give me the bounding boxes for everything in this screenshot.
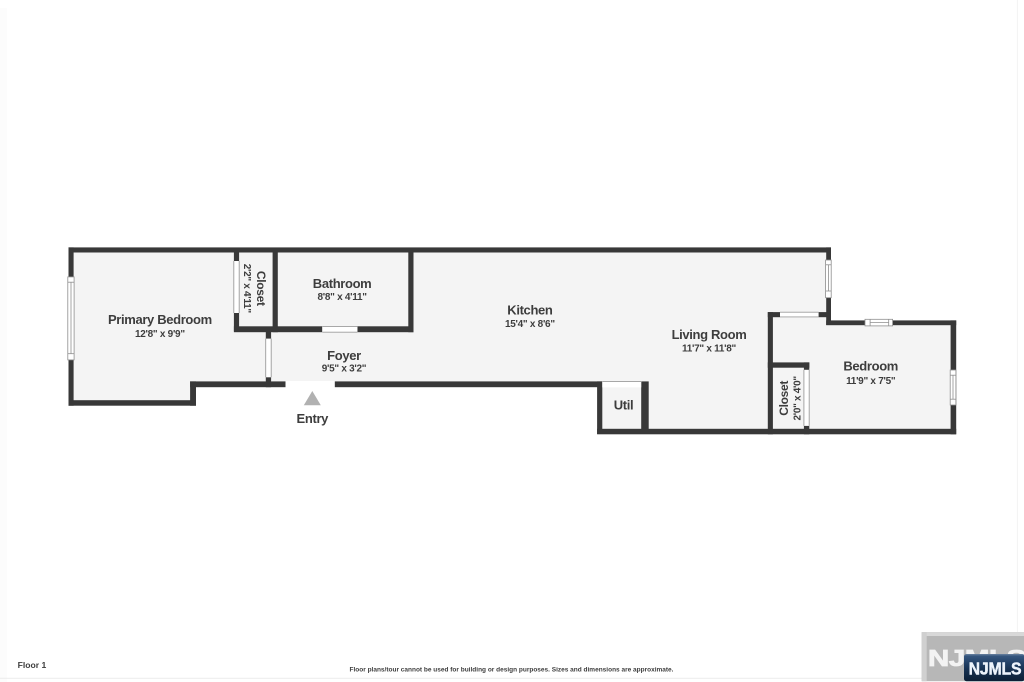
svg-text:Bathroom: Bathroom — [313, 276, 372, 291]
svg-text:Entry: Entry — [297, 411, 330, 426]
svg-text:2'0" x 4'0": 2'0" x 4'0" — [793, 376, 804, 421]
svg-text:Living Room: Living Room — [672, 327, 747, 342]
svg-text:Floor plans/tour cannot be use: Floor plans/tour cannot be used for buil… — [350, 666, 674, 673]
svg-text:2'2" x 4'11": 2'2" x 4'11" — [241, 264, 252, 314]
svg-text:9'5" x 3'2": 9'5" x 3'2" — [322, 363, 367, 374]
svg-text:Foyer: Foyer — [327, 348, 361, 363]
svg-text:Util: Util — [614, 397, 634, 412]
svg-text:Floor 1: Floor 1 — [18, 660, 47, 670]
svg-text:Closet: Closet — [254, 271, 268, 306]
svg-text:15'4" x 8'6": 15'4" x 8'6" — [505, 319, 555, 330]
svg-text:Bedroom: Bedroom — [843, 359, 898, 374]
svg-text:NJMLS: NJMLS — [969, 659, 1022, 679]
svg-text:11'7" x 11'8": 11'7" x 11'8" — [682, 343, 737, 354]
svg-text:8'8" x 4'11": 8'8" x 4'11" — [317, 292, 367, 303]
svg-text:Closet: Closet — [777, 381, 791, 416]
svg-text:Primary Bedroom: Primary Bedroom — [108, 312, 212, 327]
svg-text:12'8" x 9'9": 12'8" x 9'9" — [135, 329, 185, 340]
svg-text:11'9" x 7'5": 11'9" x 7'5" — [846, 376, 896, 387]
svg-text:Kitchen: Kitchen — [507, 302, 553, 317]
